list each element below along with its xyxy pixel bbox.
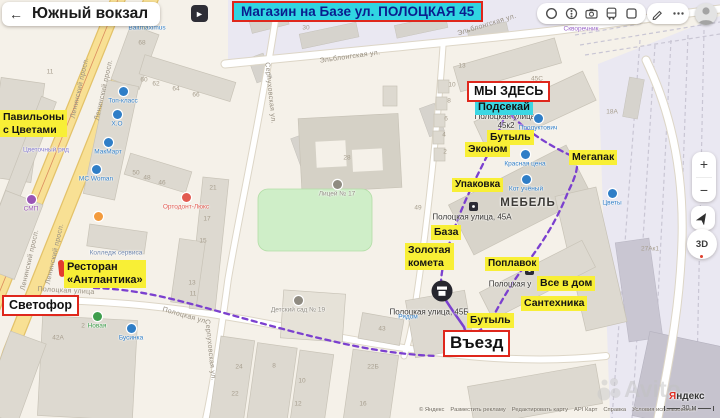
zoom-controls: + − [692, 152, 716, 202]
traffic-button[interactable] [564, 7, 578, 21]
attribution-link[interactable]: Разместить рекламу [450, 407, 505, 413]
profile-avatar[interactable] [695, 3, 717, 25]
scale-tick [664, 406, 665, 411]
map-toolbar [537, 3, 646, 24]
map-screen: Ленинский просп.Ленинский просп.Ленински… [0, 0, 720, 418]
expand-button[interactable]: ► [191, 5, 208, 22]
dial-label: 3D [696, 239, 708, 250]
transport-button[interactable] [605, 7, 619, 21]
play-icon: ► [195, 9, 204, 19]
attribution-link[interactable]: © Яндекс [419, 407, 444, 413]
scale-line [698, 408, 711, 409]
scale-line [667, 408, 680, 409]
zoom-out-button[interactable]: − [692, 178, 716, 203]
attribution-link[interactable]: Редактировать карту [512, 407, 568, 413]
place-title-bar[interactable]: ← Южный вокзал [2, 2, 160, 26]
square-icon [625, 7, 638, 20]
yandex-logo: Яндекс [669, 391, 705, 402]
camera-icon [585, 7, 598, 20]
avito-watermark: Avito [596, 374, 681, 404]
zoom-in-button[interactable]: + [692, 152, 716, 177]
map-canvas[interactable] [0, 0, 720, 418]
avito-logo-icon [596, 374, 622, 404]
measure-button[interactable] [651, 7, 665, 21]
circle-icon [545, 7, 558, 20]
compass-3d-dial[interactable]: 3D [687, 229, 717, 259]
location-arrow-icon [696, 211, 710, 225]
map-toolbar-secondary [647, 3, 689, 24]
panoramas-button[interactable] [584, 7, 598, 21]
sports-field [258, 189, 372, 251]
locate-button[interactable] [691, 206, 715, 230]
scale-label: 30 м [682, 405, 697, 412]
scale-tick [713, 406, 714, 411]
parking-button[interactable] [625, 7, 639, 21]
scale-bar: 30 м [664, 405, 714, 412]
more-button[interactable] [672, 7, 686, 21]
ellipsis-icon [672, 7, 685, 20]
person-icon [695, 3, 717, 25]
attribution-link[interactable]: API Карт [574, 407, 597, 413]
yandex-logo-rest: ндекс [676, 391, 704, 402]
attribution-link[interactable]: Справка [603, 407, 626, 413]
listing-address-banner: Магазин на Базе ул. ПОЛОЦКАЯ 45 [232, 1, 483, 22]
map-attribution: © ЯндексРазместить рекламуРедактировать … [419, 407, 696, 413]
back-icon[interactable]: ← [9, 6, 23, 22]
traffic-icon [565, 7, 578, 20]
bus-icon [605, 7, 618, 20]
destination-marker[interactable] [432, 281, 453, 302]
compass-needle [700, 255, 703, 258]
page-title: Южный вокзал [32, 5, 148, 23]
pencil-icon [651, 7, 664, 20]
layers-button[interactable] [544, 7, 558, 21]
